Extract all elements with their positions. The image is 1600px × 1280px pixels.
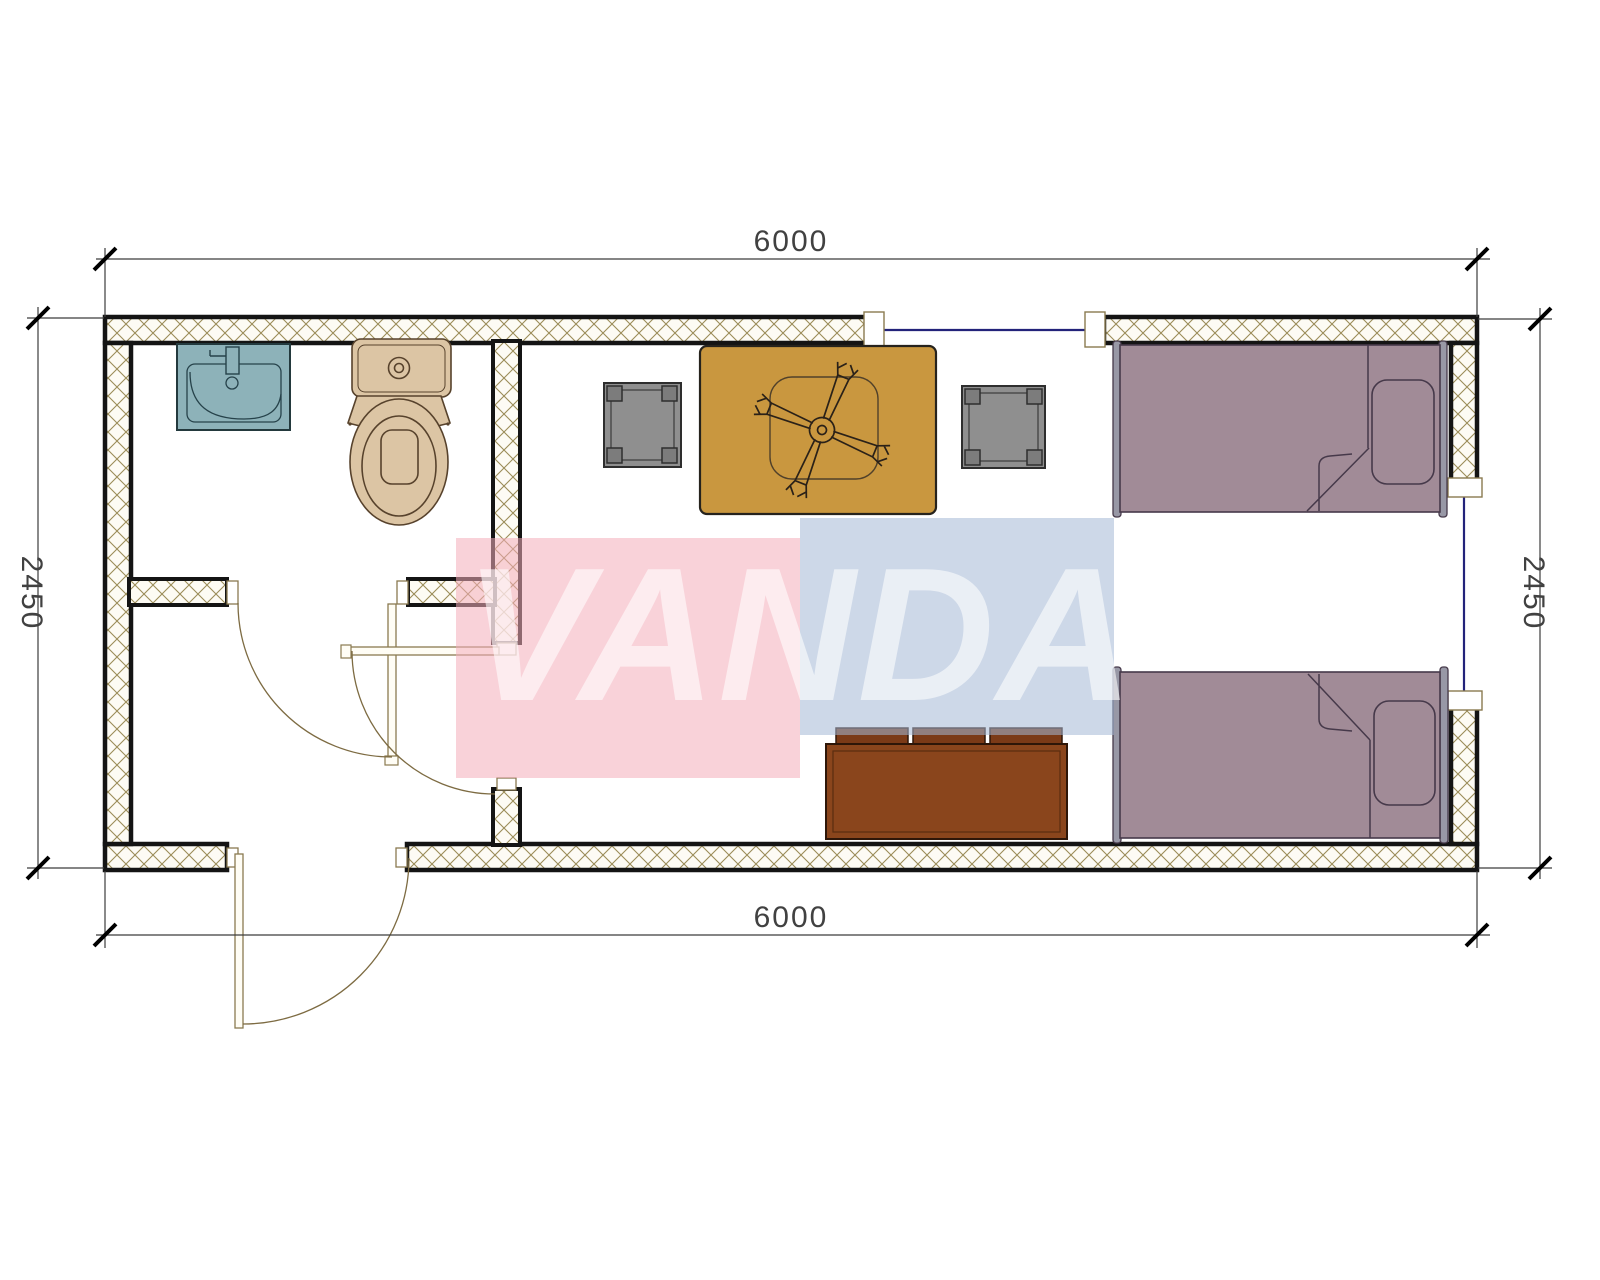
dimension-label-left: 2450 — [15, 556, 48, 631]
floor-plan-canvas: 6000 6000 2450 2450 VANDA — [0, 0, 1600, 1280]
bathroom-door-leaf — [388, 604, 396, 760]
window-top — [864, 312, 1105, 347]
bed-bottom-pillow — [1374, 701, 1435, 805]
bathroom-door-frame-left — [227, 581, 238, 604]
toilet-bolt-right — [446, 422, 449, 425]
bench — [826, 728, 1067, 839]
toilet-seat — [381, 430, 418, 484]
stool-left — [604, 383, 681, 467]
wall-right-lower-segment — [1451, 708, 1477, 844]
watermark-text: VANDA — [464, 529, 1135, 741]
entry-door — [227, 848, 409, 1028]
dimension-top-lines — [96, 248, 1490, 317]
dimension-label-bottom: 6000 — [754, 901, 829, 934]
wall-bathroom-south-left-stub — [129, 579, 227, 605]
main-door-leaf-cap — [341, 645, 351, 658]
main-door-frame-bottom — [497, 778, 516, 790]
stool-right — [962, 386, 1045, 468]
window-right-frame-upper — [1448, 478, 1482, 497]
toilet-bolt-left — [348, 422, 351, 425]
window-right-frame-lower — [1448, 691, 1482, 710]
bathroom-door-swing-arc — [238, 603, 392, 757]
wall-bottom-right-segment — [407, 844, 1477, 870]
toilet — [348, 339, 451, 525]
bed-top — [1113, 341, 1447, 517]
floor-plan-drawing: 6000 6000 2450 2450 VANDA — [0, 0, 1600, 1280]
wall-top-right-segment — [1104, 317, 1477, 343]
dimension-label-right: 2450 — [1517, 556, 1550, 631]
wall-top-left-segment — [105, 317, 866, 343]
sink-faucet — [226, 347, 239, 374]
wall-right-upper-segment — [1451, 343, 1477, 480]
bed-bottom-headboard — [1440, 667, 1448, 843]
window-top-frame-right — [1085, 312, 1105, 347]
window-top-frame-left — [864, 312, 884, 347]
bed-top-pillow — [1372, 380, 1434, 484]
window-right — [1448, 478, 1482, 710]
bed-bottom — [1113, 667, 1448, 843]
wall-bottom-left-segment — [105, 844, 227, 870]
bench-body — [826, 744, 1067, 839]
watermark: VANDA — [456, 518, 1136, 778]
table — [700, 338, 936, 523]
dimension-label-top: 6000 — [754, 225, 829, 258]
entry-door-leaf — [235, 854, 243, 1028]
entry-door-swing-arc — [243, 858, 409, 1024]
bathroom-door-frame-right — [397, 581, 408, 604]
wall-door-jamb-stub — [493, 789, 520, 845]
entry-door-frame-right — [396, 848, 407, 867]
toilet-tank — [352, 339, 451, 397]
sink — [177, 344, 290, 430]
